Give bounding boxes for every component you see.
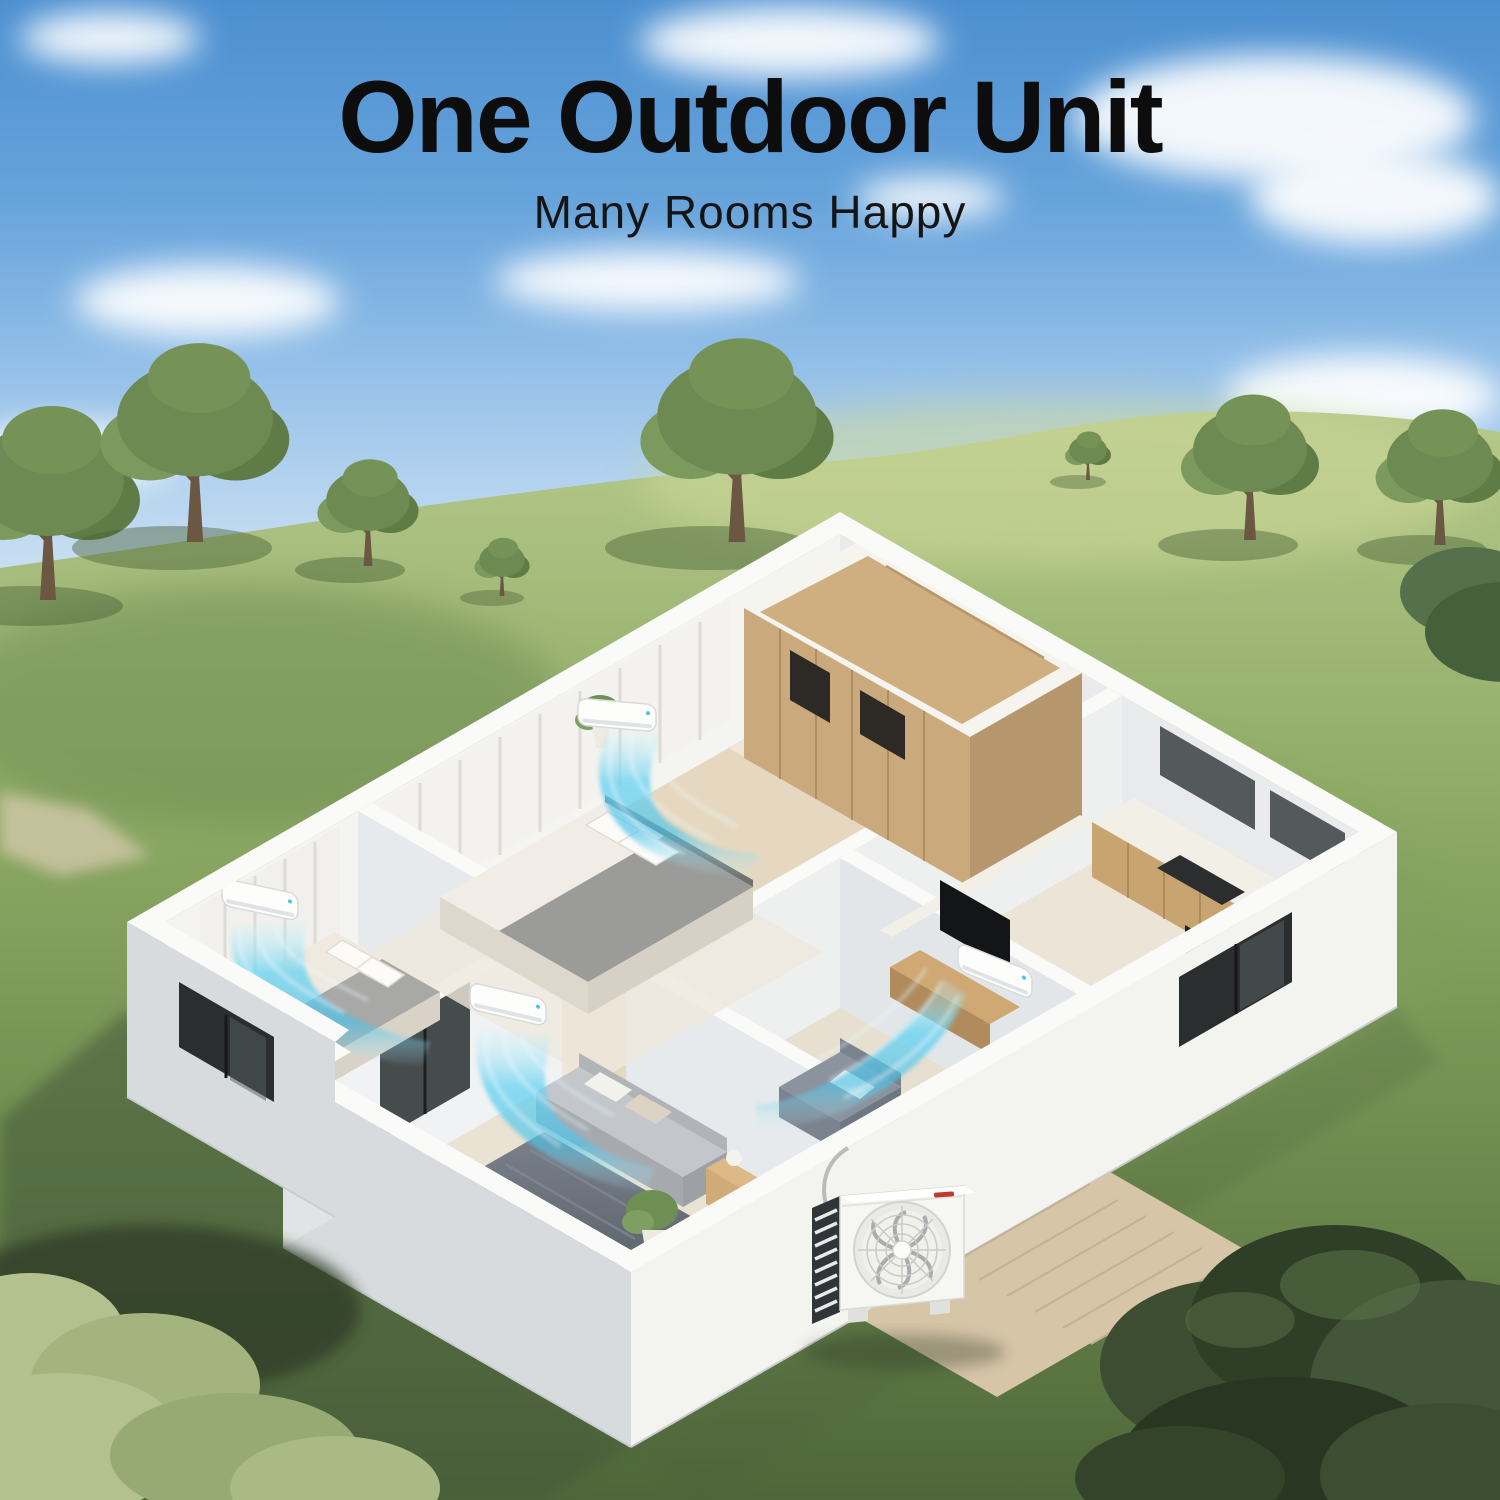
indoor-ac-unit [578,698,656,732]
headline-block: One Outdoor Unit Many Rooms Happy [0,64,1500,239]
page-title: One Outdoor Unit [0,64,1500,171]
unit-foot [930,1300,950,1315]
unit-foot [848,1308,868,1323]
scene: One Outdoor Unit Many Rooms Happy [0,0,1500,1500]
page-subtitle: Many Rooms Happy [0,185,1500,239]
fan-icon [854,1202,950,1298]
